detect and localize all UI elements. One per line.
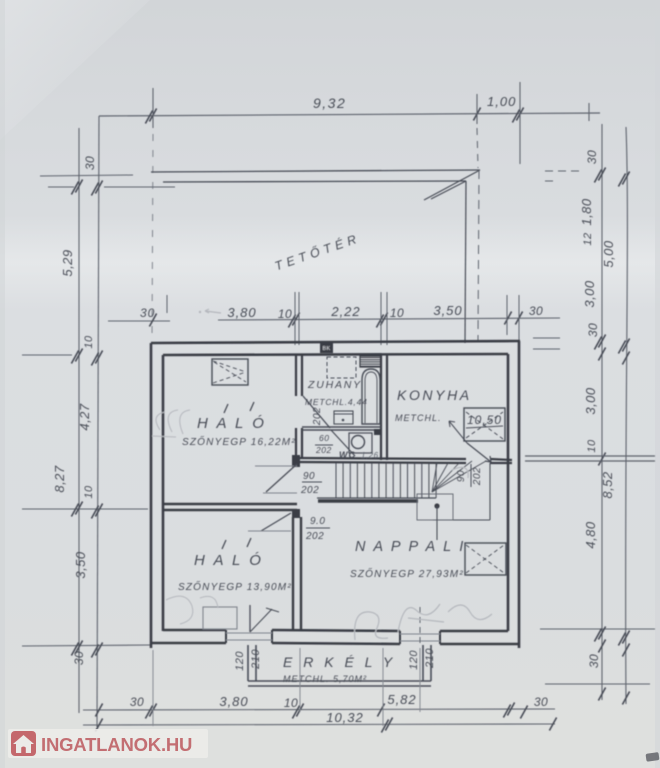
svg-text:H A L Ó: H A L Ó: [194, 552, 263, 569]
svg-text:60: 60: [319, 433, 329, 443]
svg-text:9.0: 9.0: [310, 516, 325, 527]
svg-text:202: 202: [312, 407, 323, 426]
svg-text:2,22: 2,22: [330, 304, 360, 319]
svg-text:202: 202: [472, 467, 483, 486]
svg-text:30: 30: [529, 304, 543, 318]
svg-text:ZUHANY: ZUHANY: [307, 379, 362, 391]
svg-text:INGATLANOK.HU: INGATLANOK.HU: [41, 734, 192, 755]
svg-text:SZŐNYEGP 13,90M²: SZŐNYEGP 13,90M²: [178, 579, 292, 593]
svg-text:210: 210: [250, 649, 262, 670]
svg-text:8,27: 8,27: [52, 465, 67, 493]
svg-text:12: 12: [582, 232, 594, 245]
svg-text:202: 202: [315, 445, 332, 455]
svg-text:202: 202: [305, 531, 324, 542]
svg-text:5,00: 5,00: [601, 240, 616, 268]
svg-text:SZŐNYEGP 16,22M²: SZŐNYEGP 16,22M²: [182, 434, 296, 448]
svg-text:WC: WC: [339, 450, 356, 460]
svg-text:4,80: 4,80: [583, 521, 598, 549]
svg-text:BK: BK: [323, 346, 331, 352]
svg-text:10: 10: [83, 485, 95, 499]
svg-text:N A P P A L I: N A P P A L I: [355, 539, 466, 555]
svg-text:120: 120: [408, 650, 420, 670]
svg-text:1,26: 1,26: [361, 451, 379, 460]
svg-text:METCHL.: METCHL.: [395, 413, 442, 423]
svg-text:120: 120: [234, 651, 246, 671]
svg-text:5,29: 5,29: [60, 249, 75, 276]
svg-text:10,32: 10,32: [326, 710, 364, 725]
svg-text:3,50: 3,50: [73, 551, 88, 579]
svg-text:3,50: 3,50: [433, 303, 462, 318]
svg-text:30: 30: [587, 654, 601, 668]
svg-text:202: 202: [300, 485, 319, 496]
svg-text:1,80: 1,80: [579, 198, 594, 226]
svg-text:30: 30: [140, 306, 155, 320]
svg-text:30: 30: [83, 156, 97, 170]
svg-text:90: 90: [303, 471, 315, 482]
svg-text:10: 10: [83, 335, 95, 349]
svg-text:210: 210: [424, 648, 436, 669]
svg-text:METCHL.4,44: METCHL.4,44: [305, 397, 368, 407]
svg-text:30: 30: [586, 323, 600, 337]
svg-text:5,82: 5,82: [387, 692, 416, 707]
svg-text:METCHL. 5,70M²: METCHL. 5,70M²: [283, 674, 367, 684]
svg-text:H A L Ó: H A L Ó: [197, 415, 266, 432]
svg-text:8,52: 8,52: [600, 471, 615, 499]
svg-text:3,00: 3,00: [582, 280, 597, 308]
svg-text:3,00: 3,00: [583, 387, 598, 415]
svg-text:KONYHA: KONYHA: [397, 387, 472, 403]
svg-text:4,27: 4,27: [77, 403, 92, 431]
svg-text:1,00: 1,00: [487, 94, 516, 109]
svg-text:30: 30: [585, 150, 599, 164]
svg-text:10,50: 10,50: [467, 413, 502, 427]
svg-text:10: 10: [390, 306, 404, 320]
svg-text:10: 10: [586, 439, 598, 453]
svg-text:SZŐNYEGP 27,93M²: SZŐNYEGP 27,93M²: [350, 566, 464, 580]
svg-text:10: 10: [278, 307, 292, 321]
svg-text:9,32: 9,32: [313, 95, 346, 111]
svg-text:3,80: 3,80: [219, 694, 248, 709]
svg-text:30: 30: [534, 695, 548, 709]
svg-text:30: 30: [72, 651, 86, 665]
svg-text:30: 30: [130, 695, 144, 709]
svg-text:10: 10: [284, 696, 298, 710]
svg-text:3,80: 3,80: [227, 305, 256, 320]
